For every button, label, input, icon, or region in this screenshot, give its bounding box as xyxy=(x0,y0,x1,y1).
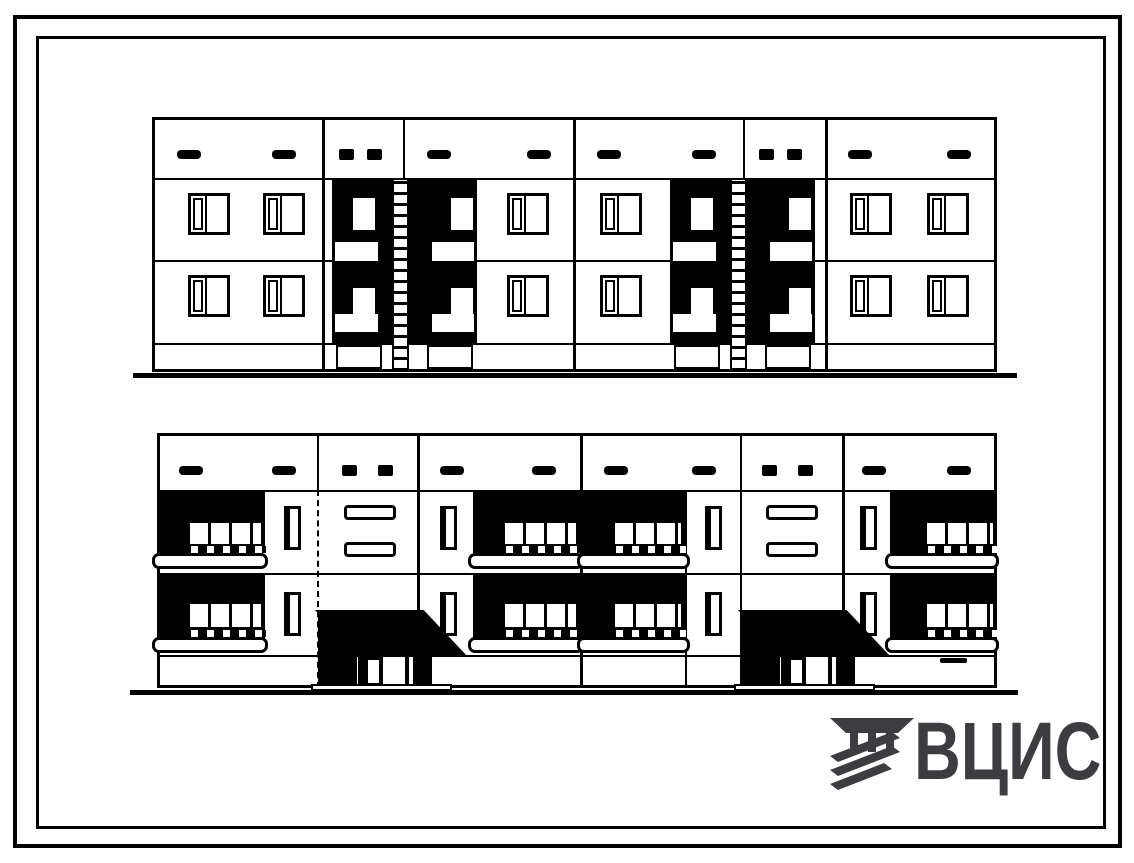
balcony-slab xyxy=(152,637,268,653)
window-sash xyxy=(512,198,522,230)
attic-vent xyxy=(862,466,886,475)
double-window xyxy=(188,275,230,317)
attic-vent xyxy=(440,466,464,475)
door-pane xyxy=(791,660,802,683)
loggia-window xyxy=(789,288,811,316)
stairwell-slot-window xyxy=(344,542,396,557)
stair-window xyxy=(705,592,722,636)
attic-vent-square xyxy=(787,149,802,160)
balcony-slab xyxy=(577,553,690,569)
fire-ladder xyxy=(730,180,747,371)
door-pane xyxy=(383,657,405,685)
loggia-window xyxy=(691,288,713,316)
balcony-railing-dashes xyxy=(607,546,686,553)
attic-vent xyxy=(179,466,203,475)
basement-panel xyxy=(427,345,473,369)
balcony-railing-dashes xyxy=(182,546,266,553)
balcony-slab xyxy=(885,553,999,569)
architectural-drawing-sheet: ВЦИС xyxy=(0,0,1134,863)
attic-vent xyxy=(692,150,716,159)
window-sash xyxy=(932,198,942,230)
attic-vent-square xyxy=(367,149,382,160)
fire-ladder xyxy=(392,180,409,371)
stairwell-slot-window xyxy=(344,505,396,520)
balcony-glazing xyxy=(922,521,995,546)
balcony-railing-dashes xyxy=(607,630,686,637)
stair-window xyxy=(440,506,457,550)
double-window xyxy=(850,193,892,235)
door-pane xyxy=(409,657,413,685)
panel-joint xyxy=(685,490,687,688)
attic-vent-square xyxy=(342,465,357,476)
window-sash xyxy=(193,198,203,230)
attic-vent-square xyxy=(378,465,393,476)
attic-vent-square xyxy=(798,465,813,476)
stairwell-slot-window xyxy=(766,542,818,557)
entrance-door xyxy=(781,651,855,688)
attic-vent xyxy=(604,466,628,475)
double-window xyxy=(507,193,549,235)
loggia-window xyxy=(451,288,473,316)
double-window xyxy=(263,193,305,235)
balcony-glazing xyxy=(500,521,578,546)
double-window xyxy=(600,275,642,317)
door-pane xyxy=(806,657,828,685)
attic-vent xyxy=(527,150,551,159)
balcony-railing-dashes xyxy=(919,546,998,553)
balcony-slab xyxy=(885,637,999,653)
window-mullion xyxy=(617,278,619,314)
balcony-railing-dashes xyxy=(497,546,581,553)
attic-vent-square xyxy=(759,149,774,160)
stair-window xyxy=(284,506,301,550)
loggia-window xyxy=(789,198,811,230)
stair-window xyxy=(860,506,877,550)
balcony-slab xyxy=(468,553,584,569)
panel-joint xyxy=(825,117,828,372)
ground-line xyxy=(133,373,1017,378)
balcony-glazing xyxy=(500,602,578,629)
window-sash xyxy=(268,198,278,230)
window-sash xyxy=(855,280,865,312)
panel-joint xyxy=(322,117,325,372)
stair-window xyxy=(440,592,457,636)
stairwell-slot-window xyxy=(766,505,818,520)
basement-vent xyxy=(940,658,967,663)
window-mullion xyxy=(205,196,207,232)
loggia-parapet xyxy=(673,242,716,261)
stair-window xyxy=(705,506,722,550)
window-mullion xyxy=(205,278,207,314)
panel-joint xyxy=(573,117,576,372)
balcony-glazing xyxy=(610,521,683,546)
balcony-glazing xyxy=(610,602,683,629)
loggia-parapet xyxy=(770,242,812,261)
window-mullion xyxy=(617,196,619,232)
double-window xyxy=(600,193,642,235)
window-mullion xyxy=(944,196,946,232)
loggia-window xyxy=(353,198,375,230)
attic-vent xyxy=(177,150,201,159)
window-sash xyxy=(193,280,203,312)
window-mullion xyxy=(280,278,282,314)
ground-line xyxy=(130,690,1018,695)
attic-vent xyxy=(427,150,451,159)
loggia-parapet xyxy=(335,242,378,261)
double-window xyxy=(188,193,230,235)
attic-vent xyxy=(597,150,621,159)
attic-vent xyxy=(947,150,971,159)
double-window xyxy=(263,275,305,317)
window-sash xyxy=(932,280,942,312)
stair-window xyxy=(284,592,301,636)
loggia-parapet xyxy=(770,314,812,332)
attic-vent xyxy=(692,466,716,475)
balcony-railing-dashes xyxy=(919,630,998,637)
double-window xyxy=(850,275,892,317)
window-sash xyxy=(855,198,865,230)
loggia-window xyxy=(353,288,375,316)
balcony-glazing xyxy=(185,602,263,629)
attic-vent xyxy=(947,466,971,475)
entrance-door xyxy=(358,651,432,688)
door-pane xyxy=(832,657,836,685)
panel-joint xyxy=(317,433,319,490)
window-sash xyxy=(268,280,278,312)
entrance-pillar xyxy=(741,612,780,688)
attic-vent-square xyxy=(339,149,354,160)
balcony-glazing xyxy=(185,521,263,546)
attic-vent-square xyxy=(762,465,777,476)
double-window xyxy=(927,193,969,235)
loggia-parapet xyxy=(432,314,474,332)
vcis-logo-text: ВЦИС xyxy=(914,711,1101,793)
door-pane xyxy=(368,660,379,683)
attic-vent xyxy=(532,466,556,475)
double-window xyxy=(927,275,969,317)
window-mullion xyxy=(867,196,869,232)
balcony-slab xyxy=(577,637,690,653)
vcis-logo-emblem-icon xyxy=(828,714,916,790)
window-sash xyxy=(605,198,615,230)
balcony-glazing xyxy=(922,602,995,629)
window-sash xyxy=(512,280,522,312)
window-mullion xyxy=(280,196,282,232)
attic-vent xyxy=(272,466,296,475)
attic-vent xyxy=(848,150,872,159)
window-mullion xyxy=(867,278,869,314)
window-mullion xyxy=(524,278,526,314)
loggia-parapet xyxy=(673,314,716,332)
loggia-window xyxy=(691,198,713,230)
window-sash xyxy=(605,280,615,312)
loggia-parapet xyxy=(432,242,474,261)
basement-panel xyxy=(765,345,811,369)
loggia-window xyxy=(451,198,473,230)
loggia-parapet xyxy=(335,314,378,332)
attic-vent xyxy=(272,150,296,159)
balcony-slab xyxy=(152,553,268,569)
window-mullion xyxy=(524,196,526,232)
entrance-pillar xyxy=(318,612,357,688)
balcony-railing-dashes xyxy=(497,630,581,637)
window-mullion xyxy=(944,278,946,314)
basement-panel xyxy=(336,345,382,369)
balcony-railing-dashes xyxy=(182,630,266,637)
balcony-slab xyxy=(468,637,584,653)
basement-panel xyxy=(674,345,720,369)
double-window xyxy=(507,275,549,317)
